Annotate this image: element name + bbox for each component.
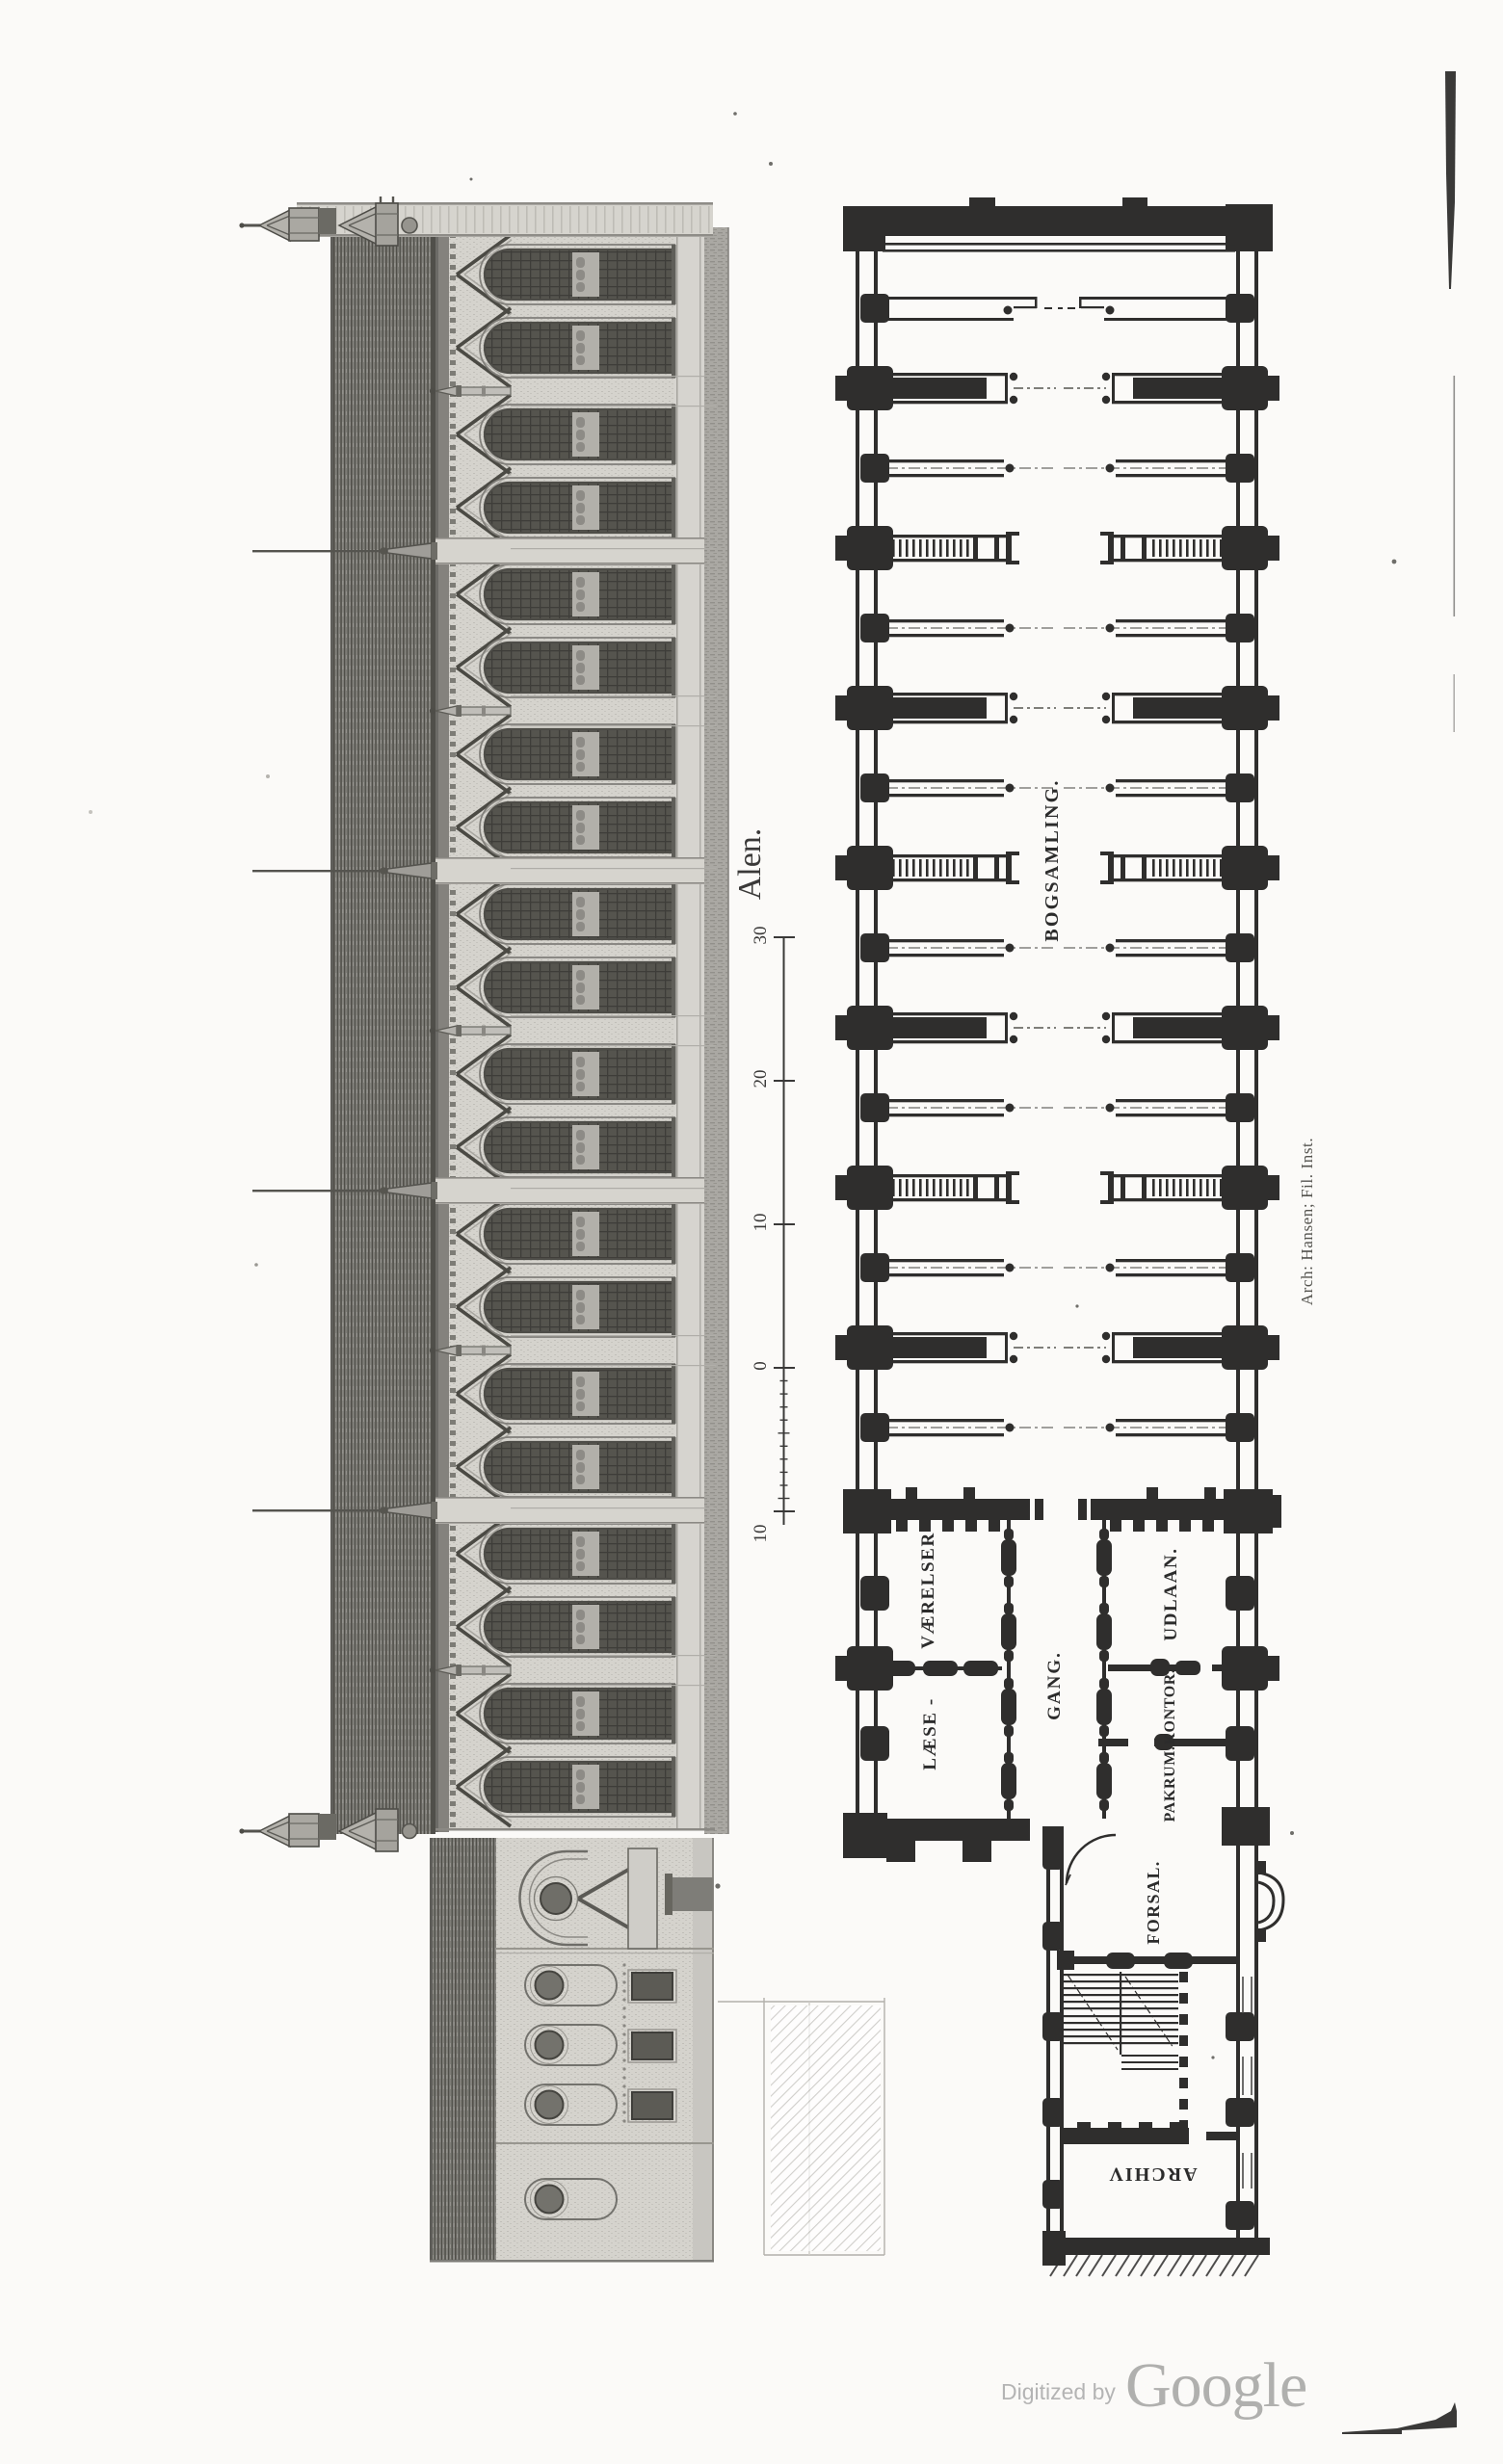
svg-text:BOGSAMLING.: BOGSAMLING. <box>1042 778 1063 941</box>
svg-text:Arch: Hansen; Fil. Inst.: Arch: Hansen; Fil. Inst. <box>1298 1138 1316 1305</box>
svg-text:UDLAAN.: UDLAAN. <box>1161 1547 1181 1640</box>
svg-text:10: 10 <box>751 1214 771 1232</box>
svg-text:Alen.: Alen. <box>732 828 768 901</box>
svg-text:0: 0 <box>751 1361 771 1371</box>
svg-text:20: 20 <box>751 1070 771 1088</box>
svg-text:GANG.: GANG. <box>1044 1651 1065 1720</box>
svg-text:KONTOR.: KONTOR. <box>1162 1668 1178 1744</box>
svg-text:30: 30 <box>751 927 771 945</box>
svg-text:VÆRELSER: VÆRELSER <box>918 1532 938 1649</box>
svg-text:Digitized by: Digitized by <box>1001 2379 1116 2404</box>
svg-text:PAKRUM.: PAKRUM. <box>1162 1746 1178 1822</box>
svg-text:ARCHIV: ARCHIV <box>1107 2163 1197 2185</box>
svg-text:FORSAL.: FORSAL. <box>1144 1860 1163 1944</box>
svg-text:Google: Google <box>1125 2350 1306 2421</box>
svg-text:LÆSE -: LÆSE - <box>920 1697 940 1770</box>
svg-text:10: 10 <box>751 1525 771 1543</box>
